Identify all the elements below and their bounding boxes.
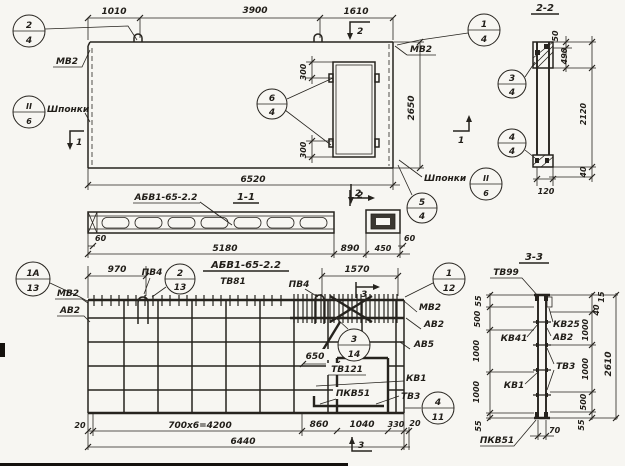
callout-ii-6-right-den: 6 xyxy=(483,189,489,198)
callout-5-4-den: 4 xyxy=(418,212,425,222)
dim-50: 50 xyxy=(551,30,560,42)
dim-70: 70 xyxy=(549,426,561,435)
dim-60-left: 60 xyxy=(95,234,107,243)
rebar-left-labels: МВ2 АВ2 xyxy=(55,289,90,322)
label-pkv51-plan: ПКВ51 xyxy=(336,389,370,399)
dim-l-55a: 55 xyxy=(474,295,483,307)
callout-1-4-num: 1 xyxy=(481,20,487,30)
dim-2610: 2610 xyxy=(604,351,614,376)
callout-1-12-den: 12 xyxy=(443,284,456,294)
dim-300-top: 300 xyxy=(299,63,308,80)
dim-1010: 1010 xyxy=(101,7,126,17)
callout-3-14: 3 14 xyxy=(336,318,370,361)
callout-1a-13-den: 13 xyxy=(27,284,40,294)
dim-40: 40 xyxy=(579,166,588,179)
dim-890: 890 xyxy=(341,244,360,254)
label-tv121: ТВ121 xyxy=(331,365,363,375)
drawing-sheet: 1010 3900 1610 2 300 30 xyxy=(0,0,625,466)
callout-1-4-den: 4 xyxy=(480,35,487,45)
label-av2-sec: АВ2 xyxy=(552,333,573,343)
callout-4-4-den: 4 xyxy=(508,147,515,157)
rebar-label-mv2-left: МВ2 xyxy=(57,289,79,299)
callout-6-4: 6 4 xyxy=(257,78,333,145)
label-mv2-left-group: МВ2 xyxy=(53,50,90,67)
marker-1-right-label: 1 xyxy=(458,136,464,146)
dim-l-1000b: 1000 xyxy=(472,380,481,403)
dim-650: 650 xyxy=(306,352,325,362)
section-1-1-title: 1-1 xyxy=(237,192,255,203)
rebar-label-av2-right: АВ2 xyxy=(423,320,444,330)
section-2-2-body xyxy=(533,42,553,167)
callout-6-4-den: 4 xyxy=(268,108,275,118)
callout-4-11-den: 11 xyxy=(432,413,445,423)
top-plan-view: 1010 3900 1610 2 300 30 xyxy=(13,6,502,223)
dim-330: 330 xyxy=(388,420,405,429)
callout-3-4: 3 4 xyxy=(498,62,535,98)
dim-20-right: 20 xyxy=(409,419,421,428)
section-3-3-view: 3-3 55 500 1000 1000 5 xyxy=(472,252,619,446)
section-2-2-view: 2-2 3 4 4 4 xyxy=(498,3,596,196)
label-mv2-left: МВ2 xyxy=(56,57,78,67)
rebar-label-av5: АВ5 xyxy=(413,340,434,350)
dim-l-55b: 55 xyxy=(474,420,483,432)
rebar-label-mv2-right: МВ2 xyxy=(419,303,441,313)
dim-r-1000a: 1000 xyxy=(581,318,590,341)
label-kv1-plan: КВ1 xyxy=(406,374,426,384)
door-opening xyxy=(329,62,379,157)
callout-ii-6-left-den: 6 xyxy=(26,117,32,126)
section-2-2-title: 2-2 xyxy=(536,3,554,14)
marker-1-left-label: 1 xyxy=(76,138,82,148)
section-3-3-body xyxy=(533,295,552,418)
callout-3-4-num: 3 xyxy=(509,74,515,84)
dim-r-40: 40 xyxy=(592,304,601,317)
section-marker-3-bottom: 3 xyxy=(349,437,372,451)
dim-60-right: 60 xyxy=(404,234,416,243)
callout-ii-6-right-num: II xyxy=(483,174,489,183)
dim-70-group: 70 xyxy=(530,420,561,440)
dim-r-500: 500 xyxy=(579,393,588,410)
rebar-inner-labels: ТВ121 КВ1 ПКВ51 ТВ3 xyxy=(316,363,426,404)
dim-5180: 5180 xyxy=(212,244,237,254)
label-kv1-sec: КВ1 xyxy=(504,381,524,391)
dim-490: 490 xyxy=(560,47,569,65)
dim-r-55: 55 xyxy=(577,419,586,431)
callout-4-4: 4 4 xyxy=(498,129,535,158)
shponki-right-group: Шпонки II 6 xyxy=(399,160,502,200)
dim-2120: 2120 xyxy=(579,102,588,125)
dim-1040: 1040 xyxy=(349,420,374,430)
marker-2-top-label: 2 xyxy=(357,27,363,37)
callout-1-4: 1 4 xyxy=(397,14,500,46)
dim-6520: 6520 xyxy=(240,175,265,185)
marker-3-bottom-label: 3 xyxy=(358,441,364,451)
label-mv2-right-group: МВ2 xyxy=(395,45,436,55)
callout-3-14-num: 3 xyxy=(351,335,357,345)
panel-outline xyxy=(88,34,393,168)
callout-4-11-num: 4 xyxy=(434,398,441,408)
dim-1610: 1610 xyxy=(343,7,368,17)
dim-450: 450 xyxy=(374,244,392,253)
callout-2-4-num: 2 xyxy=(26,21,32,31)
rebar-plan-subtitle: ТВ81 xyxy=(220,277,246,287)
label-shponki-right: Шпонки xyxy=(424,174,467,184)
rebar-plan-title: АБВ1-65-2.2 xyxy=(210,260,281,271)
dim-r-15: 15 xyxy=(597,291,606,303)
section-marker-1-right: 1 xyxy=(453,115,472,146)
label-pkv51-sec: ПКВ51 xyxy=(480,436,514,446)
section-1-1-body xyxy=(88,212,334,233)
callout-2-13-den: 13 xyxy=(174,283,187,293)
dim-r-1000b: 1000 xyxy=(581,357,590,380)
section-marker-1-left: 1 xyxy=(67,131,84,150)
dim-20-left: 20 xyxy=(74,421,86,430)
callout-3-4-den: 4 xyxy=(508,88,515,98)
section-3-3-title: 3-3 xyxy=(525,252,543,263)
callout-ii-6-left-num: II xyxy=(26,102,32,111)
callout-6-4-num: 6 xyxy=(269,94,275,104)
label-tv99: ТВ99 xyxy=(493,268,519,278)
dim-6440: 6440 xyxy=(230,437,255,447)
section-1-1-view: АБВ1-65-2.2 1-1 2 xyxy=(85,189,416,258)
dim-l-1000a: 1000 xyxy=(472,339,481,362)
dim-1570: 1570 xyxy=(344,265,369,275)
label-kv25: КВ25 xyxy=(553,320,580,330)
callout-1-12: 1 12 xyxy=(405,263,465,297)
dim-l-500: 500 xyxy=(473,310,482,327)
label-shponki-left: Шпонки xyxy=(47,105,90,115)
section-1-1-mark-label: АБВ1-65-2.2 xyxy=(134,193,198,203)
label-tv3-plan: ТВ3 xyxy=(401,392,420,402)
rebar-plan-view: 1А 13 970 ПВ4 2 13 АБВ1-65-2.2 ТВ81 ПВ4 xyxy=(16,260,465,451)
dim-3900: 3900 xyxy=(242,6,267,16)
section-3-3-left-dims xyxy=(486,292,534,421)
dim-120: 120 xyxy=(538,187,555,196)
callout-5-4-num: 5 xyxy=(419,198,425,208)
dim-300-bottom: 300 xyxy=(299,141,308,158)
callout-1-12-num: 1 xyxy=(446,269,452,279)
dim-970: 970 xyxy=(108,265,127,275)
callout-3-14-den: 14 xyxy=(348,350,361,360)
label-pv4-left: ПВ4 xyxy=(142,268,163,278)
panel-drawing: 1010 3900 1610 2 300 30 xyxy=(0,0,625,466)
marker-2-mid-label: 2 xyxy=(355,189,361,199)
rebar-right-labels: МВ2 АВ2 АВ5 xyxy=(400,301,444,350)
callout-2-4-den: 4 xyxy=(25,36,32,46)
label-kv41: КВ41 xyxy=(501,334,528,344)
label-pv4-right: ПВ4 xyxy=(289,280,310,290)
callout-2-13-num: 2 xyxy=(177,269,183,279)
dim-700x6: 700x6=4200 xyxy=(168,421,231,431)
callout-1a-13-num: 1А xyxy=(26,269,39,279)
shponki-left-group: II 6 Шпонки xyxy=(13,96,90,128)
section-1-1-end-piece xyxy=(366,210,400,233)
rebar-label-av2-left: АВ2 xyxy=(59,306,80,316)
dim-860: 860 xyxy=(310,420,329,430)
dim-2650: 2650 xyxy=(407,95,417,120)
label-tv3-sec: ТВ3 xyxy=(556,362,575,372)
section-marker-2-top: 2 xyxy=(347,22,370,40)
scan-artifacts xyxy=(0,343,348,466)
section-1-1-dims xyxy=(85,233,410,258)
callout-4-4-num: 4 xyxy=(508,133,515,143)
label-mv2-right: МВ2 xyxy=(410,45,432,55)
